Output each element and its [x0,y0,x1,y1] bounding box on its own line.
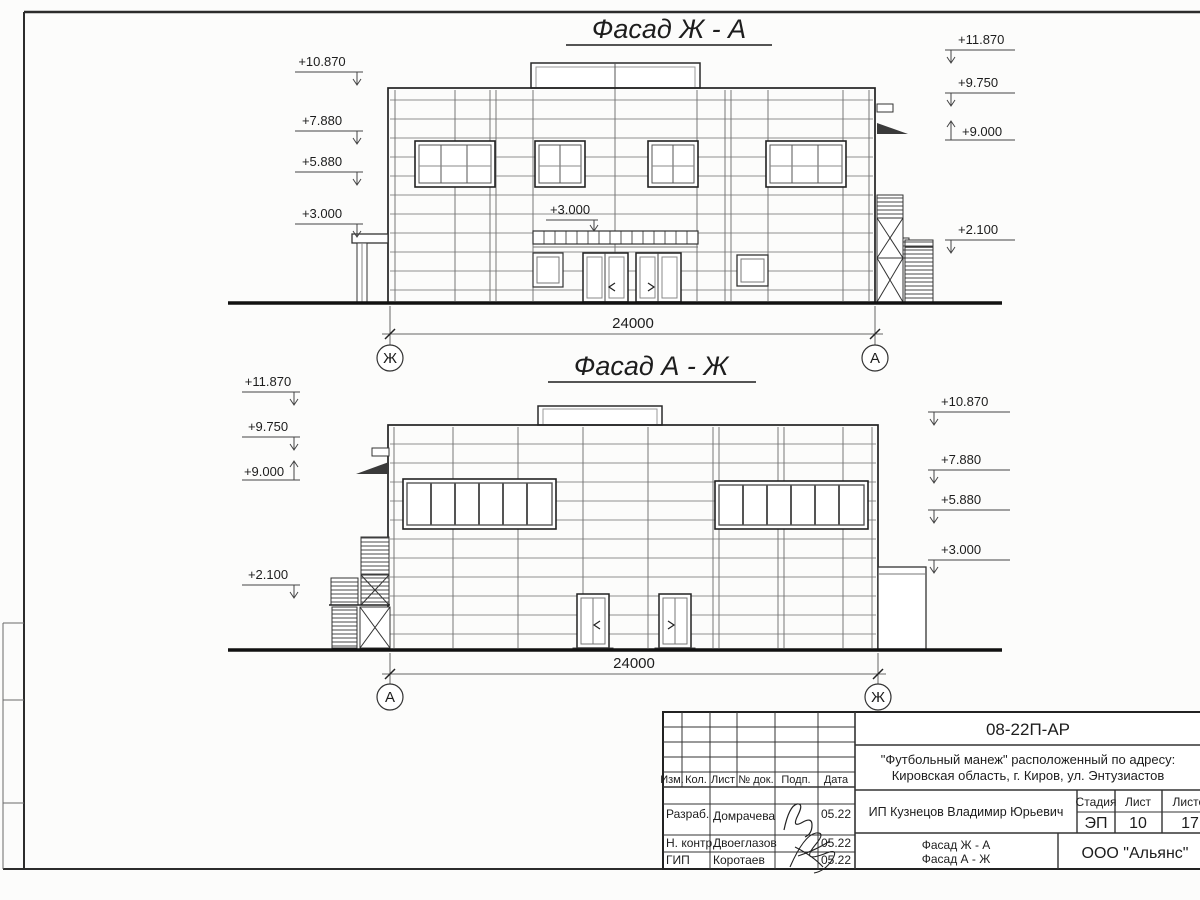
elevation-mark: +5.880 [295,154,363,185]
sheet-value: 10 [1129,815,1147,832]
svg-text:Лист: Лист [711,774,735,786]
svg-text:Подп.: Подп. [781,774,810,786]
facade2-ribbon-windows [403,479,868,529]
svg-text:№ док.: № док. [738,774,773,786]
elevation-mark: +10.870 [928,394,1010,425]
window [766,141,846,187]
svg-text:Дата: Дата [824,774,849,786]
stage-value: ЭП [1085,815,1108,832]
svg-text:Двоеглазов: Двоеглазов [713,836,777,850]
svg-text:+3.000: +3.000 [550,202,590,217]
facade1-penthouse [531,63,700,88]
roof-vent [372,448,389,456]
facade1-right-marks: +11.870 +9.750 +9.000 +2.100 [945,32,1015,253]
facade1-entrance-mark: +3.000 [546,202,598,231]
organization-name: ООО "Альянс" [1082,845,1189,862]
facade2-outline [388,425,878,650]
facade1-left-marks: +10.870 +7.880 +5.880 +3.000 [295,54,363,237]
window [535,141,585,187]
svg-text:+7.880: +7.880 [302,113,342,128]
door [655,594,695,651]
elevation-mark: +3.000 [928,542,1010,573]
svg-text:05.22: 05.22 [821,836,851,850]
svg-text:+11.870: +11.870 [245,374,291,389]
facade1-entrance [533,253,768,302]
external-stair-tower [329,537,390,648]
elevation-mark: +5.880 [928,492,1010,523]
facade1-dimension: 24000 [382,306,883,345]
svg-text:+3.000: +3.000 [302,206,342,221]
roof-vent [877,104,893,112]
facade2-left-structures [329,448,390,648]
elevation-mark: +2.100 [242,567,300,598]
elevation-mark: +10.870 [295,54,363,85]
facade2-dimension-text: 24000 [613,655,655,672]
drawing-sheet: Фасад Ж - А [0,0,1200,900]
project-name-line2: Кировская область, г. Киров, ул. Энтузиа… [892,768,1165,783]
elevation-mark: +9.000 [945,121,1015,140]
client-name: ИП Кузнецов Владимир Юрьевич [869,805,1064,819]
document-number: 08-22П-АР [986,720,1070,739]
svg-text:+5.880: +5.880 [302,154,342,169]
facade2-doors [573,594,695,651]
double-door [583,253,628,302]
sheets-value: 17 [1181,815,1199,832]
svg-text:+3.000: +3.000 [941,542,981,557]
sheet-content-line1: Фасад Ж - А [922,838,991,852]
external-stair-tower [877,195,933,302]
project-name-line1: "Футбольный манеж" расположенный по адре… [881,752,1175,767]
title-block: Изм. Кол. Лист № док. Подп. Дата Разраб.… [660,712,1200,873]
facade2-axis-markers: А Ж [377,684,891,710]
svg-text:Коротаев: Коротаев [713,853,765,867]
svg-text:+9.000: +9.000 [244,464,284,479]
axis-label: Ж [383,350,397,367]
elevation-mark: +2.100 [945,222,1015,253]
facade2-left-marks: +11.870 +9.750 +9.000 +2.100 [242,374,300,598]
axis-label: А [870,350,880,367]
svg-text:+2.100: +2.100 [958,222,998,237]
facade1-title: Фасад Ж - А [592,14,746,44]
elevation-mark: +11.870 [242,374,300,405]
svg-text:+2.100: +2.100 [248,567,288,582]
elevation-mark: +11.870 [945,32,1015,63]
svg-text:+5.880: +5.880 [941,492,981,507]
sheets-label: Листов [1173,795,1200,809]
facade1-upper-windows [415,141,846,187]
elevation-mark: +7.880 [928,452,1010,483]
svg-text:+9.750: +9.750 [958,75,998,90]
window [415,141,495,187]
elevation-mark: +9.750 [242,419,300,450]
facade2-right-marks: +10.870 +7.880 +5.880 +3.000 [928,394,1010,573]
axis-label: Ж [871,689,885,706]
elevation-mark: +9.000 [242,461,300,480]
svg-text:+9.000: +9.000 [962,124,1002,139]
stage-label: Стадия [1076,795,1117,809]
svg-text:Изм.: Изм. [660,774,684,786]
svg-text:Домрачева: Домрачева [713,809,775,823]
elevation-mark: +9.750 [945,75,1015,106]
facade2-title: Фасад А - Ж [574,351,730,381]
svg-text:ГИП: ГИП [666,853,690,867]
facade1-siding-lines [390,100,873,290]
svg-text:+10.870: +10.870 [941,394,988,409]
svg-text:+9.750: +9.750 [248,419,288,434]
facade2-right-annex [878,567,926,650]
facade2-dimension: 24000 [382,653,886,684]
svg-text:Разраб.: Разраб. [666,807,709,821]
drawing-canvas: Фасад Ж - А [0,0,1200,900]
facade2-penthouse [538,406,662,425]
facade1-right-structures [877,104,933,302]
svg-text:+10.870: +10.870 [298,54,345,69]
sheet-content-line2: Фасад А - Ж [922,852,991,866]
svg-text:05.22: 05.22 [821,853,851,867]
door [573,594,613,651]
facade1-left-porch [352,234,388,302]
svg-text:+11.870: +11.870 [958,32,1004,47]
facade-zh-a-drawing: Фасад Ж - А [228,14,1015,371]
sheet-label: Лист [1125,795,1152,809]
axis-label: А [385,689,395,706]
facade2-siding-lines [390,444,876,634]
facade-a-zh-drawing: Фасад А - Ж [228,351,1010,710]
frame-side-column [3,623,24,869]
ribbon-window [403,479,556,529]
ribbon-window [715,481,868,529]
lower-window [737,255,768,286]
facade1-dimension-text: 24000 [612,315,654,332]
elevation-mark: +7.880 [295,113,363,144]
svg-text:+7.880: +7.880 [941,452,981,467]
wedge-canopy [877,123,908,134]
svg-text:05.22: 05.22 [821,807,851,821]
staff-row: Н. контр. Двоеглазов 05.22 [666,836,851,850]
elevation-mark: +3.000 [295,206,363,237]
double-door [636,253,681,302]
window [648,141,698,187]
svg-text:Н. контр.: Н. контр. [666,836,716,850]
svg-text:Кол.: Кол. [685,774,707,786]
wedge-canopy [356,462,389,474]
